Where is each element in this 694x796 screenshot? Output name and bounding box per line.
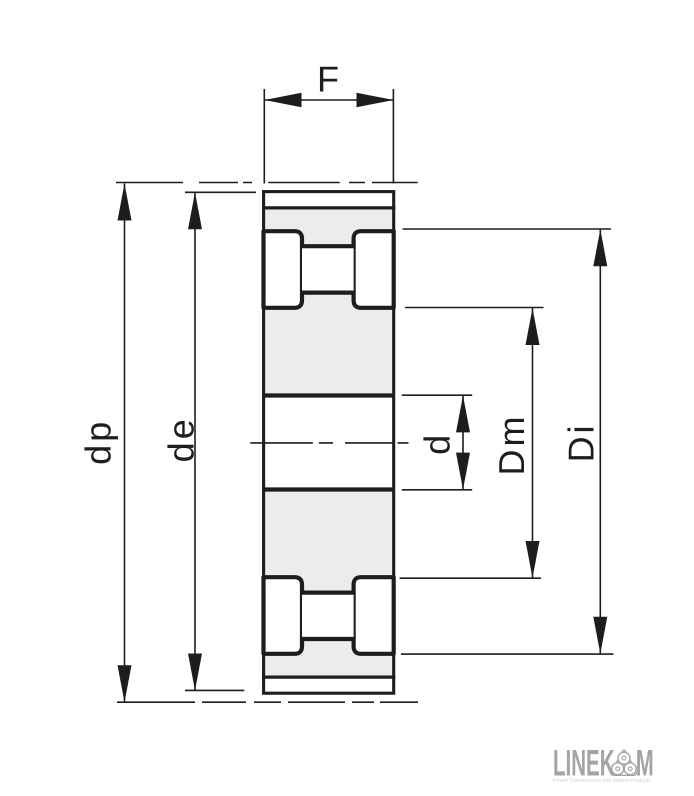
- svg-text:dp: dp: [77, 419, 118, 465]
- svg-text:Di: Di: [561, 423, 602, 463]
- svg-text:de: de: [160, 416, 201, 462]
- svg-text:Dm: Dm: [491, 414, 532, 476]
- svg-text:Power Transmission and Motion: Power Transmission and Motion Products: [553, 778, 651, 784]
- svg-text:F: F: [317, 59, 339, 100]
- svg-text:d: d: [417, 435, 458, 455]
